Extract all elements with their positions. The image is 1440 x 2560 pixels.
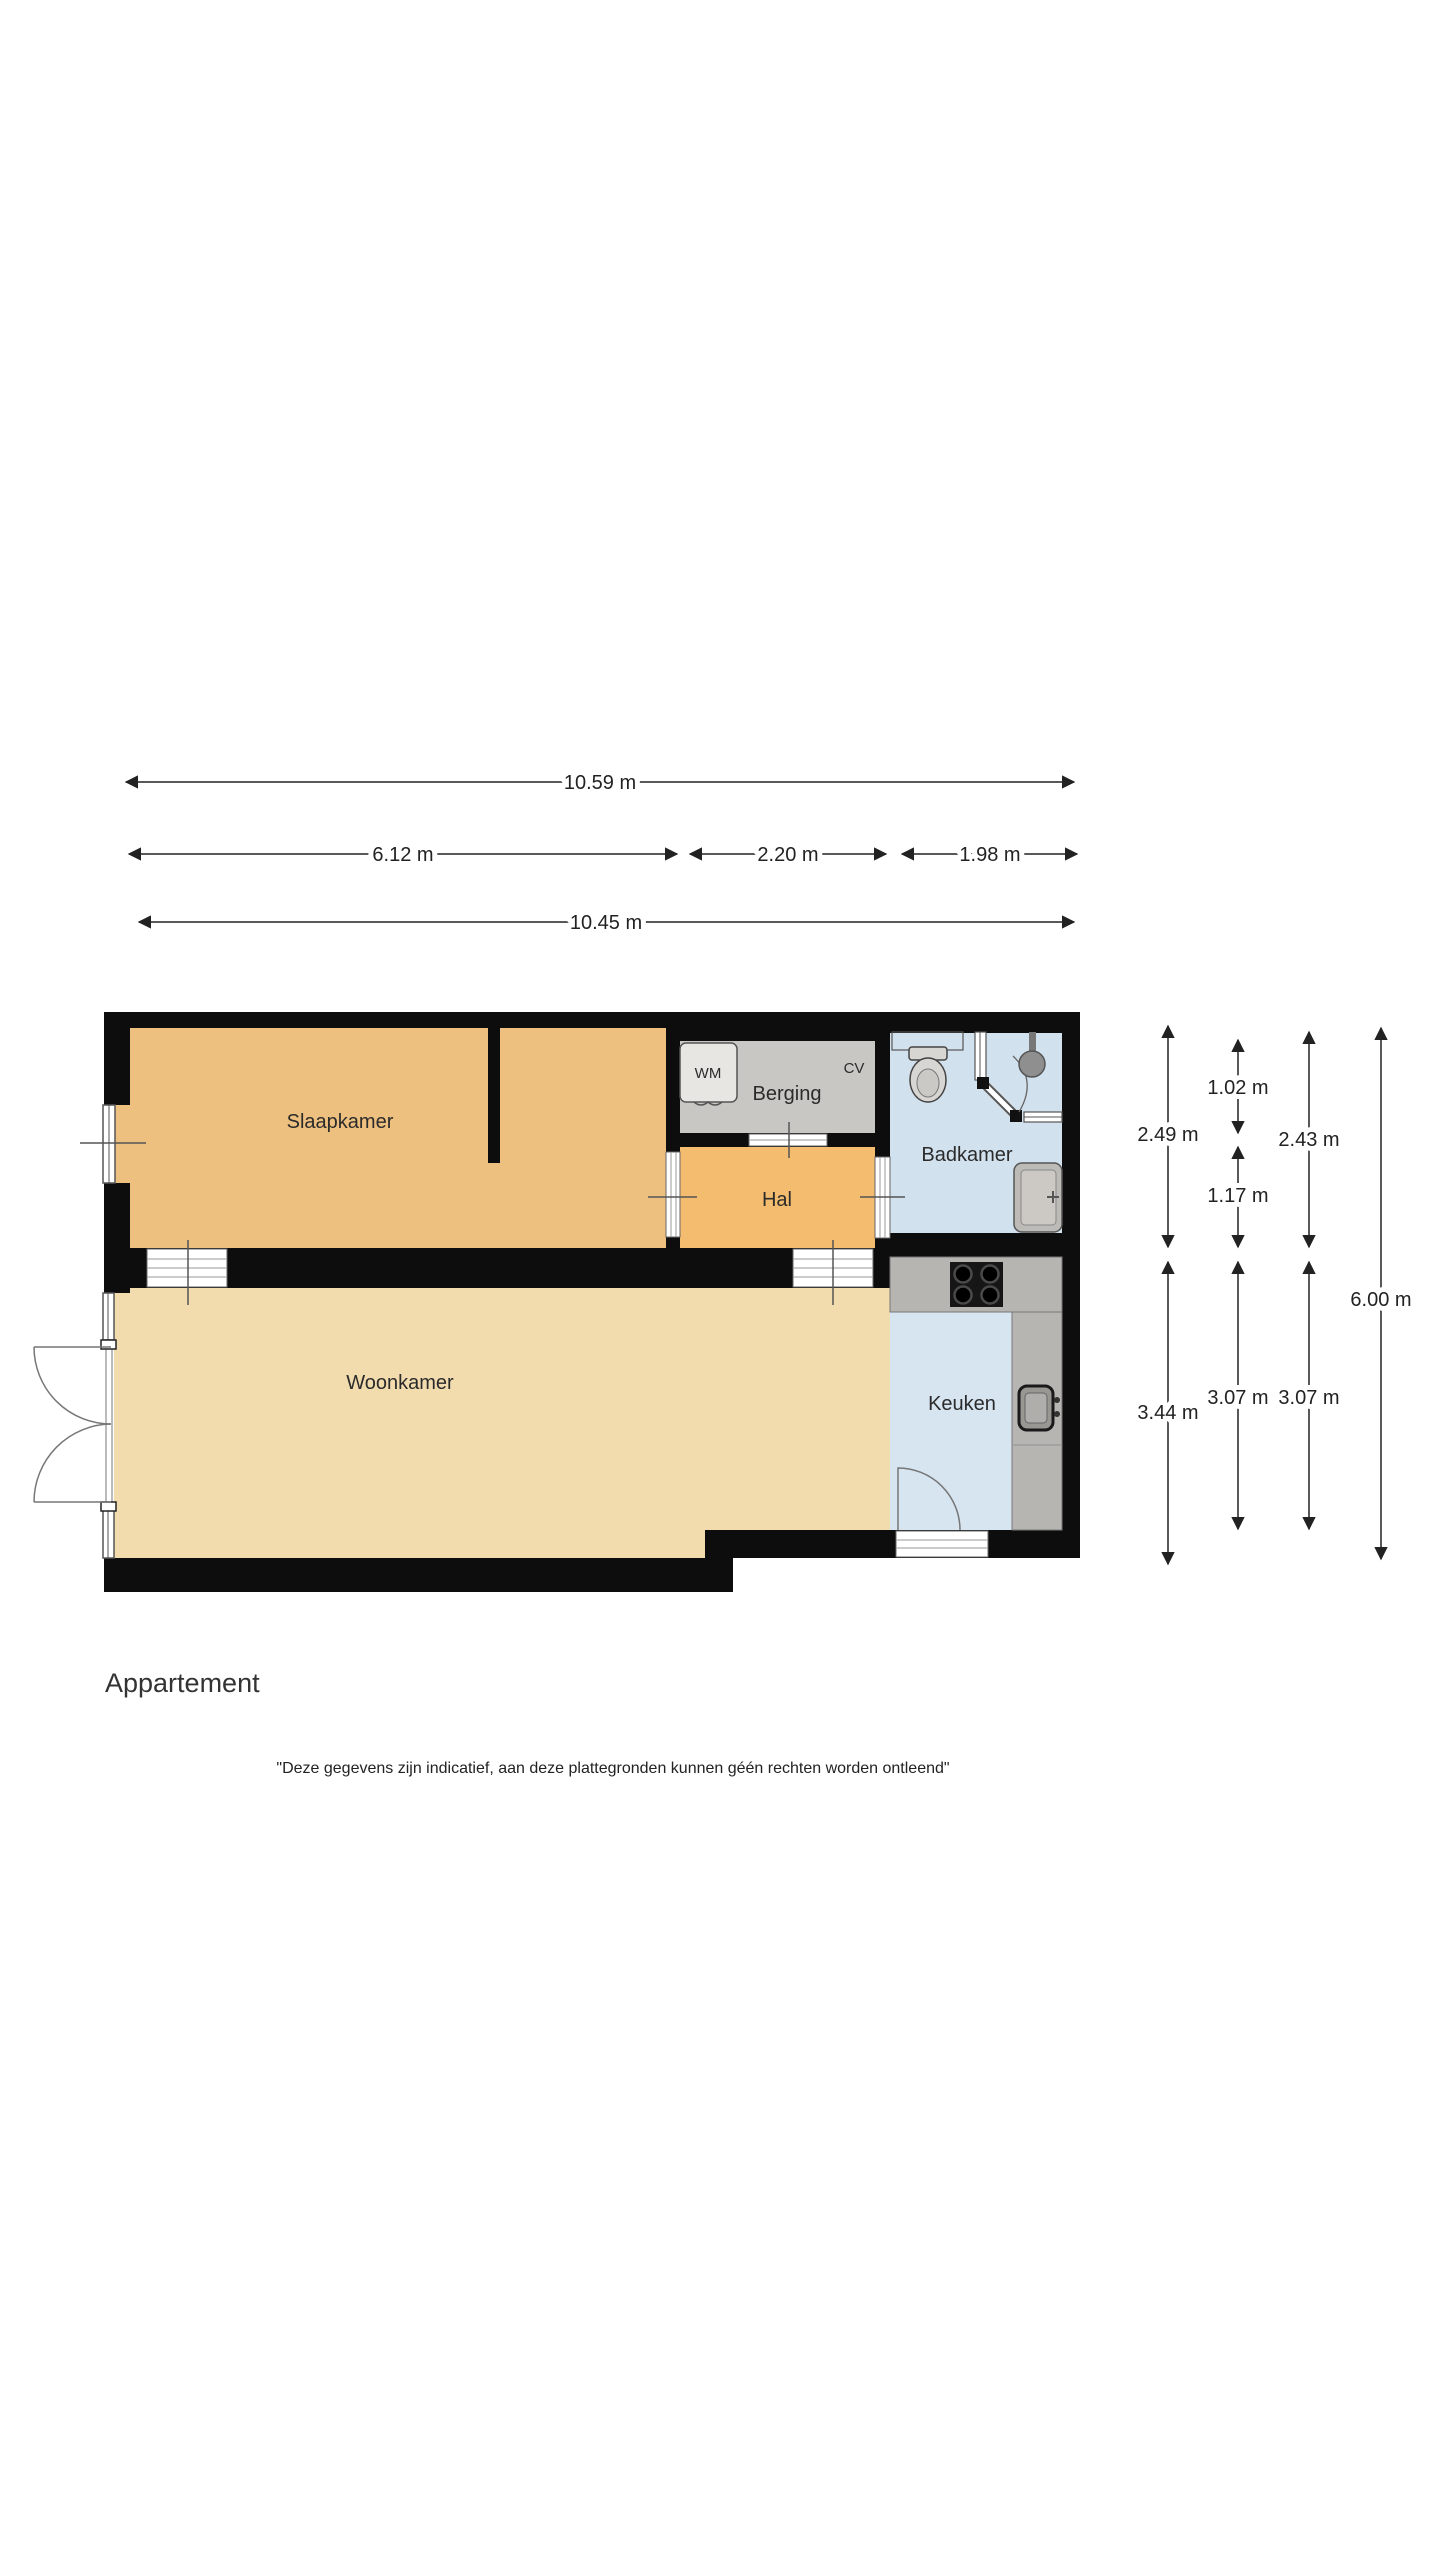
toilet-icon [909,1047,947,1102]
floorplan-page: Slaapkamer Woonkamer Hal Berging Badkame… [0,0,1440,2560]
wall-left-upper [104,1012,130,1105]
stove-icon [950,1262,1003,1307]
interior-window-bedroom-living [147,1249,227,1287]
floorplan-drawing: Slaapkamer Woonkamer Hal Berging Badkame… [0,0,1440,2560]
keuken-label: Keuken [928,1393,996,1415]
dim-total-top: 10.59 m [564,772,636,794]
dim-right-col3-top: 2.43 m [1278,1129,1339,1151]
french-door-opening [106,1348,112,1502]
page-title: Appartement [105,1668,260,1698]
berging-label: Berging [753,1083,822,1105]
cv-label: CV [844,1060,865,1077]
shower-door-hinge-2 [1010,1110,1022,1122]
dim-right-col3-bottom: 3.07 m [1278,1387,1339,1409]
dim-seg-mid: 2.20 m [757,844,818,866]
wall-bedroom-partition [488,1026,500,1163]
wall-bottom-left [104,1558,733,1592]
wall-top [104,1012,1080,1028]
dim-right-col2-top: 1.02 m [1207,1077,1268,1099]
wall-top-berging [666,1028,890,1041]
wm-label: WM [695,1065,722,1082]
kitchen-sink-icon [1019,1386,1060,1430]
french-door-arc-bottom [34,1424,111,1502]
french-door-hinge-bottom [101,1502,116,1511]
dim-right-col2-mid: 1.17 m [1207,1185,1268,1207]
wall-right [1062,1028,1080,1558]
dim-right-col2-bottom: 3.07 m [1207,1387,1268,1409]
wall-bottom-step [705,1530,733,1592]
dim-right-col1-top: 2.49 m [1137,1124,1198,1146]
dim-right-total: 6.00 m [1350,1289,1411,1311]
opening-berging-hal [749,1134,827,1146]
opening-bedroom-hal [666,1152,680,1237]
bath-sink-icon [1014,1163,1062,1232]
slaapkamer-label: Slaapkamer [287,1111,394,1133]
dim-right-col1-bottom: 3.44 m [1137,1402,1198,1424]
woonkamer-floor [114,1288,894,1558]
opening-keuken-exterior [896,1531,988,1557]
hal-label: Hal [762,1189,792,1211]
shower-door-hinge-1 [977,1077,989,1089]
slaapkamer-floor [114,1026,666,1248]
french-door-arc-top [34,1347,111,1424]
badkamer-label: Badkamer [921,1144,1012,1166]
dim-seg-left: 6.12 m [372,844,433,866]
disclaimer-text: "Deze gegevens zijn indicatief, aan deze… [276,1760,949,1777]
wall-bottom-right [705,1530,1080,1558]
woonkamer-label: Woonkamer [346,1372,454,1394]
dim-total-bottom: 10.45 m [570,912,642,934]
wall-badkamer-keuken [875,1233,1080,1257]
dim-seg-right: 1.98 m [959,844,1020,866]
